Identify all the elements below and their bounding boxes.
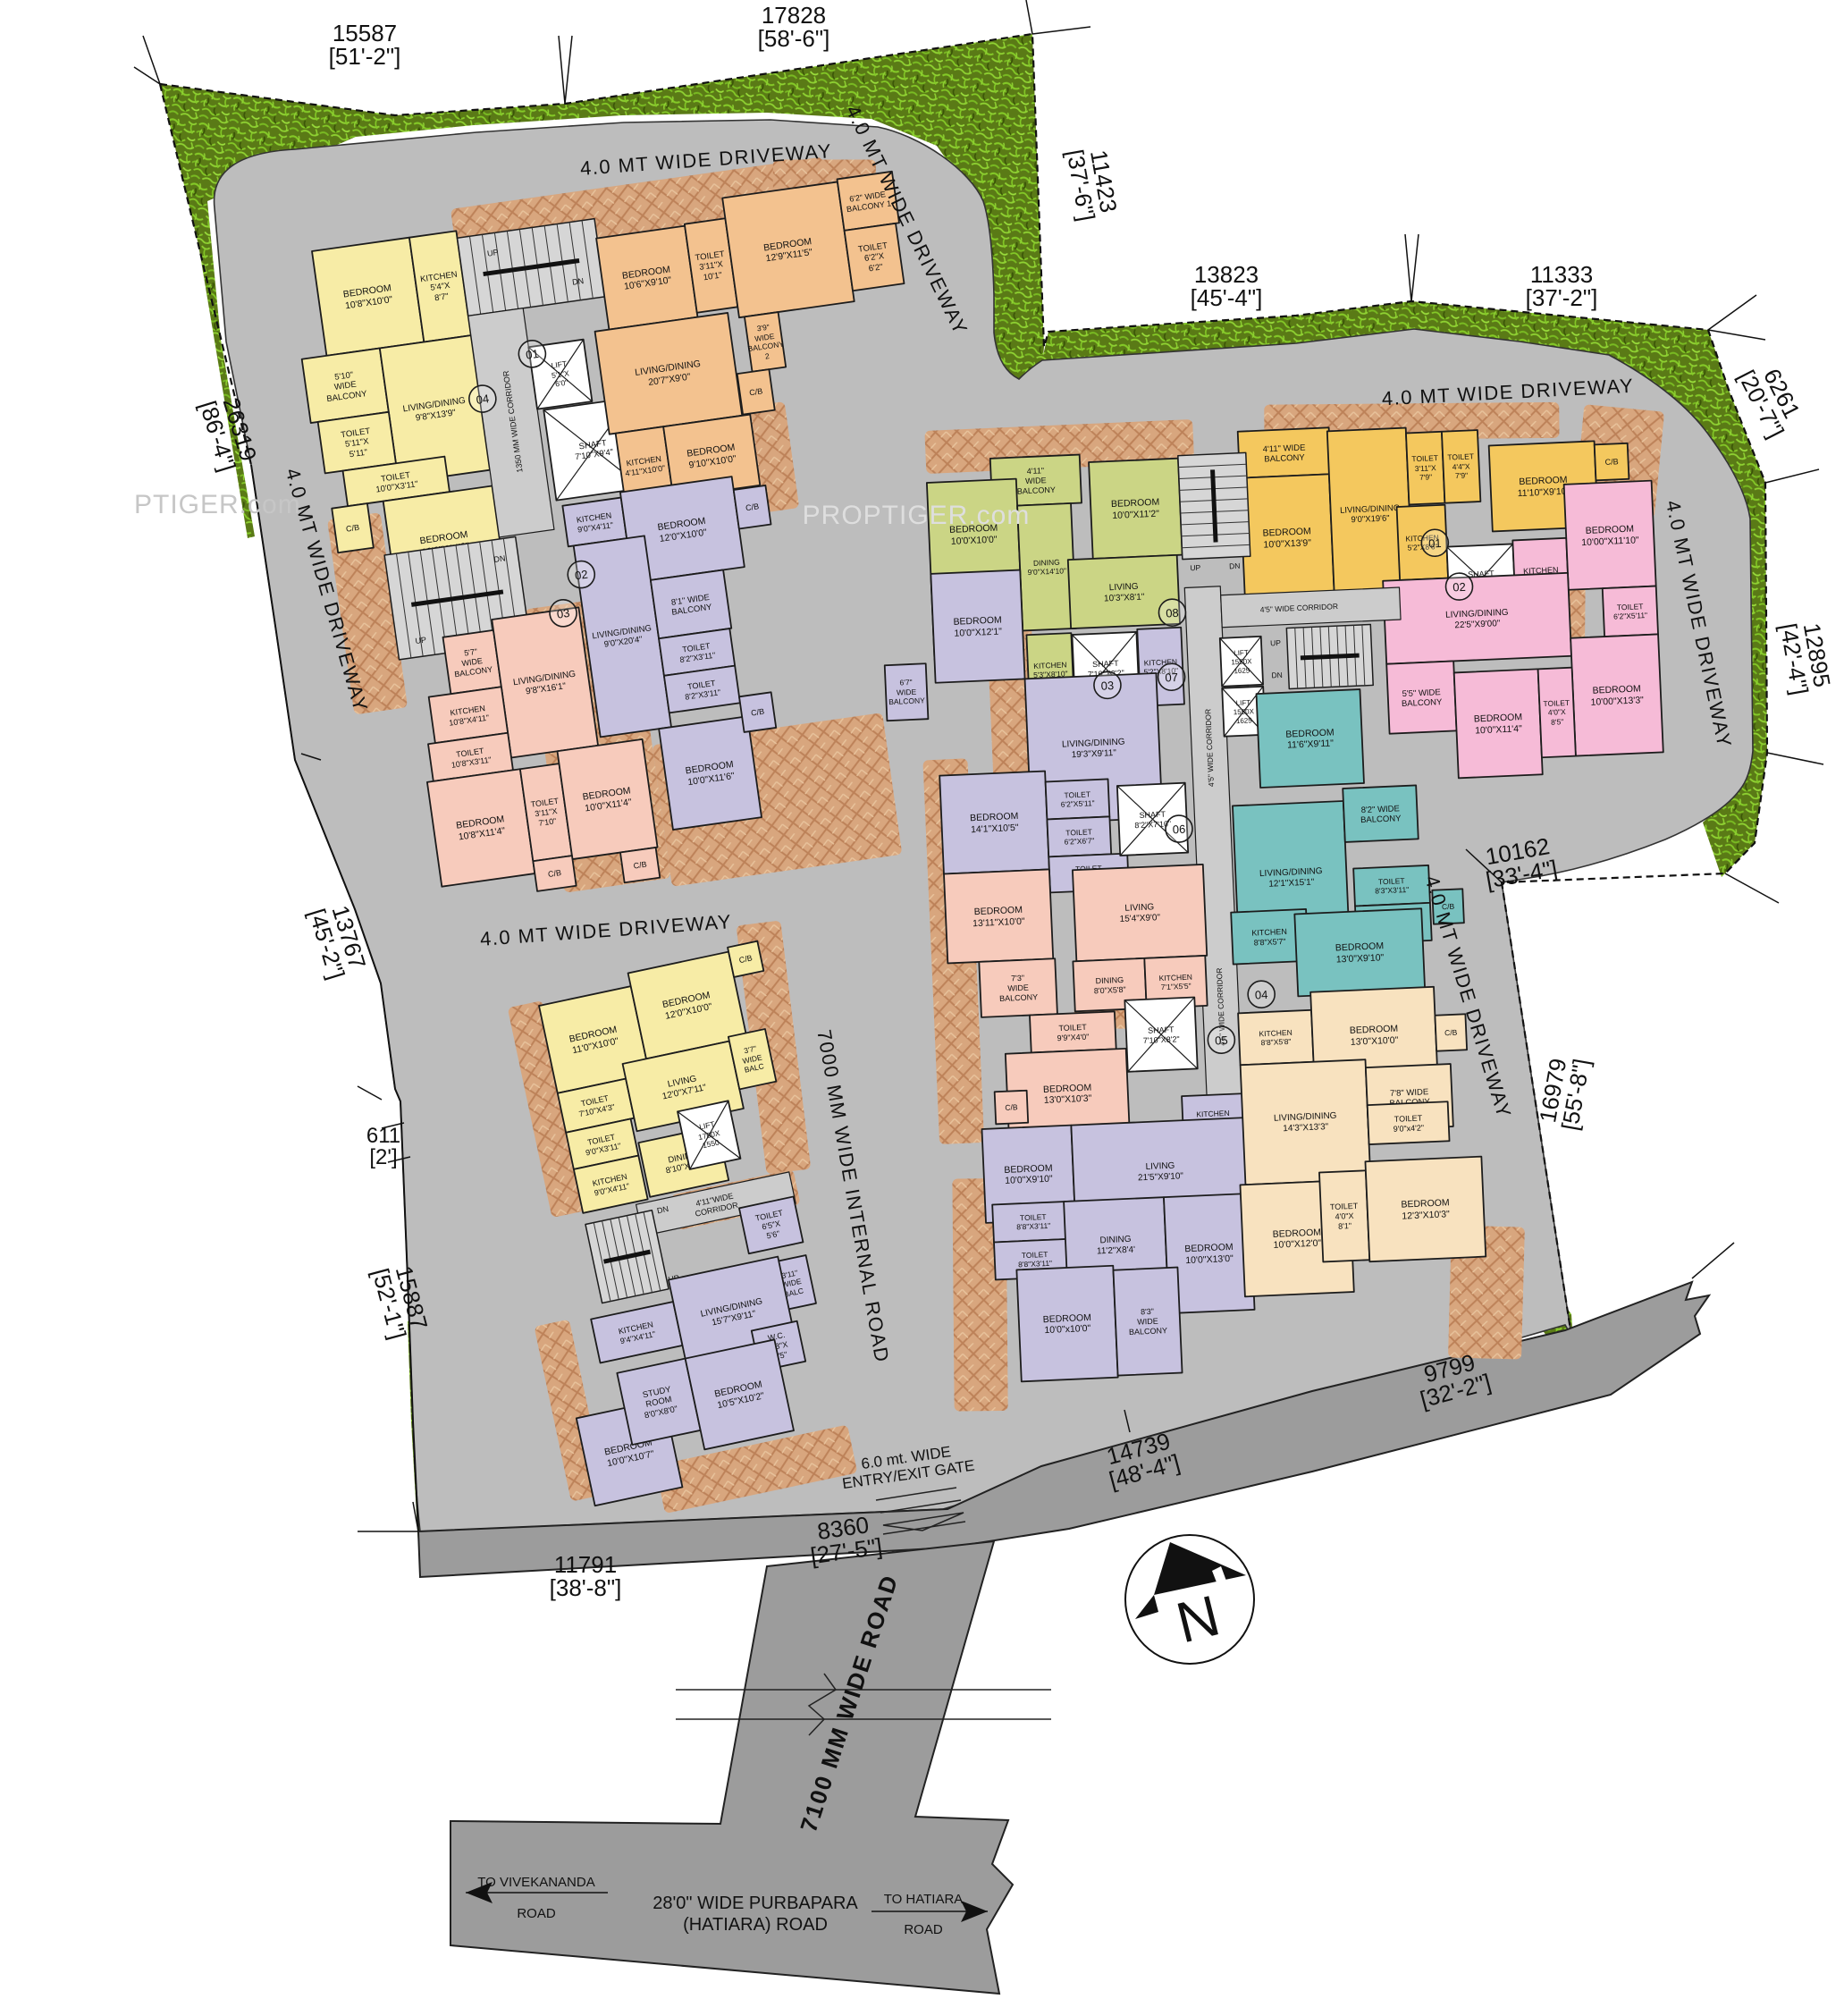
svg-text:C/B: C/B	[750, 707, 764, 718]
svg-text:01: 01	[1428, 536, 1442, 551]
svg-text:DN: DN	[1229, 561, 1241, 571]
svg-text:TOILET9'9"X4'0": TOILET9'9"X4'0"	[1057, 1023, 1090, 1043]
svg-text:KITCHEN8'8"X5'7": KITCHEN8'8"X5'7"	[1251, 927, 1287, 948]
svg-text:04: 04	[476, 392, 490, 407]
svg-text:BEDROOM10'0"x10'0": BEDROOM10'0"x10'0"	[1042, 1312, 1091, 1336]
svg-text:BEDROOM10'0"X11'4": BEDROOM10'0"X11'4"	[1474, 712, 1523, 736]
svg-text:15587[51'-2"]: 15587[51'-2"]	[329, 20, 401, 70]
svg-text:04: 04	[1255, 988, 1268, 1002]
svg-text:611[2']: 611[2']	[366, 1124, 400, 1169]
svg-text:13823[45'-4"]: 13823[45'-4"]	[1191, 261, 1263, 311]
svg-text:C/B: C/B	[1005, 1102, 1018, 1112]
svg-text:TOILET6'2"X6'7": TOILET6'2"X6'7"	[1064, 827, 1095, 846]
svg-text:8'2" WIDEBALCONY: 8'2" WIDEBALCONY	[1360, 804, 1402, 825]
svg-text:07: 07	[1165, 671, 1178, 685]
svg-text:BEDROOM13'0"X9'10": BEDROOM13'0"X9'10"	[1335, 941, 1385, 965]
svg-text:08: 08	[1166, 606, 1179, 620]
svg-text:03: 03	[1100, 679, 1114, 693]
svg-text:C/B: C/B	[345, 523, 359, 534]
svg-text:5'5" WIDEBALCONY: 5'5" WIDEBALCONY	[1401, 687, 1443, 709]
svg-text:DINING8'0"X5'8": DINING8'0"X5'8"	[1093, 975, 1126, 996]
svg-text:BEDROOM11'10"X9'10": BEDROOM11'10"X9'10"	[1517, 475, 1570, 500]
svg-text:DINING11'2"X8'4': DINING11'2"X8'4'	[1096, 1235, 1135, 1257]
svg-text:PROPTIGER.com: PROPTIGER.com	[803, 501, 1031, 530]
svg-text:DN: DN	[493, 553, 506, 564]
svg-text:PTIGER.com: PTIGER.com	[134, 490, 301, 519]
svg-text:BEDROOM12'3"X10'3": BEDROOM12'3"X10'3"	[1401, 1197, 1450, 1221]
svg-text:BEDROOM13'11"X10'0": BEDROOM13'11"X10'0"	[972, 905, 1025, 930]
svg-text:BEDROOM10'0"X13'0": BEDROOM10'0"X13'0"	[1184, 1242, 1234, 1266]
svg-text:BEDROOM14'1"X10'5": BEDROOM14'1"X10'5"	[970, 811, 1019, 835]
svg-text:TOILET8'3"X3'11": TOILET8'3"X3'11"	[1375, 876, 1410, 896]
svg-text:02: 02	[1452, 580, 1466, 595]
svg-text:TOILET8'8"X3'11": TOILET8'8"X3'11"	[1016, 1212, 1051, 1232]
svg-text:KITCHEN7'1"X5'5": KITCHEN7'1"X5'5"	[1158, 973, 1192, 992]
svg-text:C/B: C/B	[749, 386, 763, 397]
svg-text:BEDROOM10'0"X12'1": BEDROOM10'0"X12'1"	[953, 614, 1002, 638]
svg-text:TOILET8'8"X3'11": TOILET8'8"X3'11"	[1017, 1250, 1052, 1269]
svg-text:TOILET9'0"x4'2": TOILET9'0"x4'2"	[1393, 1113, 1424, 1133]
svg-text:UP: UP	[486, 248, 499, 258]
svg-text:BEDROOM13'0"X10'3": BEDROOM13'0"X10'3"	[1043, 1083, 1092, 1106]
svg-text:DN: DN	[1271, 671, 1283, 680]
svg-text:17828[58'-6"]: 17828[58'-6"]	[758, 2, 830, 52]
svg-text:TO HATIARA: TO HATIARA	[884, 1892, 964, 1907]
svg-text:TO VIVEKANANDA: TO VIVEKANANDA	[477, 1875, 594, 1890]
svg-text:11333[37'-2"]: 11333[37'-2"]	[1526, 261, 1598, 311]
svg-text:06: 06	[1172, 822, 1185, 837]
svg-text:LIVING/DINING14'3"X13'3": LIVING/DINING14'3"X13'3"	[1274, 1111, 1338, 1135]
svg-text:KITCHEN8'8"X5'8": KITCHEN8'8"X5'8"	[1259, 1028, 1292, 1048]
svg-text:11791[38'-8"]: 11791[38'-8"]	[550, 1551, 622, 1601]
svg-text:BEDROOM10'0"X11'2": BEDROOM10'0"X11'2"	[1111, 497, 1160, 521]
svg-text:UP: UP	[1190, 563, 1201, 573]
svg-text:BEDROOM10'00"X13'3": BEDROOM10'00"X13'3"	[1590, 683, 1645, 708]
svg-text:01: 01	[525, 347, 539, 362]
svg-text:BEDROOM10'00"X11'10": BEDROOM10'00"X11'10"	[1580, 523, 1639, 548]
svg-text:BEDROOM10'0"X13'9": BEDROOM10'0"X13'9"	[1262, 526, 1311, 550]
svg-text:4'11" WIDEBALCONY: 4'11" WIDEBALCONY	[1262, 443, 1306, 464]
svg-text:LIVING/DINING22'5"X9'00": LIVING/DINING22'5"X9'00"	[1445, 608, 1510, 631]
svg-text:03: 03	[556, 606, 570, 621]
svg-text:C/B: C/B	[1604, 457, 1618, 467]
svg-text:BEDROOM10'0"X9'10": BEDROOM10'0"X9'10"	[1004, 1163, 1053, 1186]
svg-text:UP: UP	[1270, 638, 1282, 648]
svg-text:UP: UP	[415, 635, 427, 645]
svg-text:ROAD: ROAD	[904, 1922, 943, 1937]
svg-text:C/B: C/B	[745, 502, 759, 512]
svg-text:C/B: C/B	[633, 860, 647, 871]
svg-text:BEDROOM13'0"X10'0": BEDROOM13'0"X10'0"	[1350, 1024, 1399, 1048]
svg-text:LIVING/DINING12'1"X15'1": LIVING/DINING12'1"X15'1"	[1259, 866, 1324, 890]
svg-text:C/B: C/B	[547, 868, 561, 879]
svg-text:C/B: C/B	[1444, 1028, 1458, 1038]
svg-text:BEDROOM10'0"X12'0": BEDROOM10'0"X12'0"	[1273, 1227, 1322, 1251]
svg-text:TOILET6'2"X5'11": TOILET6'2"X5'11"	[1612, 602, 1647, 621]
svg-text:DN: DN	[571, 276, 584, 287]
svg-text:ROAD: ROAD	[517, 1906, 556, 1921]
svg-text:BEDROOM11'6"X9'11": BEDROOM11'6"X9'11"	[1285, 727, 1335, 750]
svg-text:02: 02	[574, 568, 588, 583]
svg-text:05: 05	[1215, 1033, 1228, 1048]
svg-text:TOILET6'2"X5'11": TOILET6'2"X5'11"	[1060, 789, 1095, 809]
